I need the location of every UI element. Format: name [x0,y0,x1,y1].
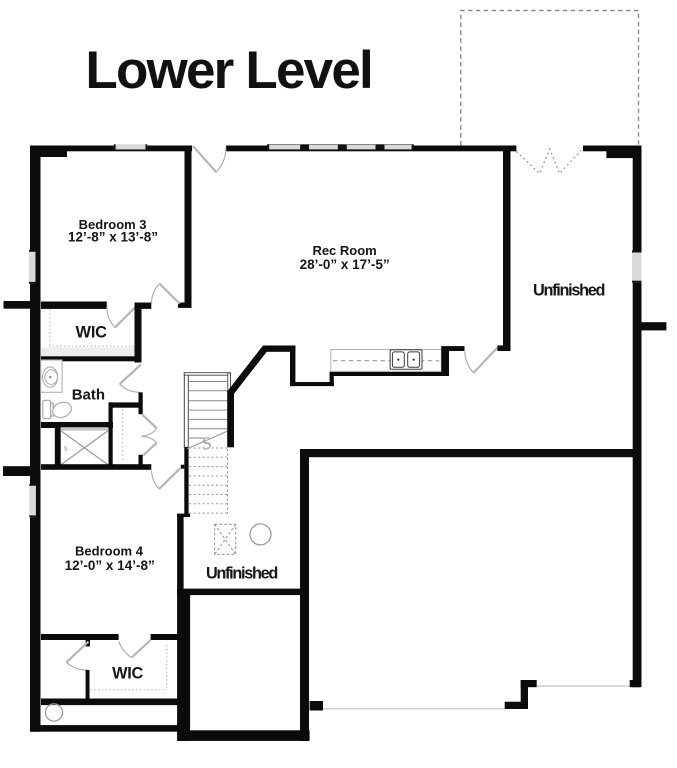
svg-text:28’-0” x 17’-5”: 28’-0” x 17’-5” [300,257,390,272]
svg-text:Unfinished: Unfinished [206,565,277,583]
svg-text:s: s [64,446,68,453]
svg-text:Lower Level: Lower Level [85,41,372,100]
svg-text:12’-8” x 13’-8”: 12’-8” x 13’-8” [68,230,158,245]
svg-text:Unfinished: Unfinished [533,282,604,300]
svg-text:12’-0” x 14’-8”: 12’-0” x 14’-8” [65,558,155,573]
svg-text:Rec Room: Rec Room [312,243,376,258]
svg-text:Bedroom 4: Bedroom 4 [75,544,144,559]
svg-text:WIC: WIC [76,323,107,341]
svg-text:WIC: WIC [112,664,143,682]
svg-text:Bath: Bath [72,387,105,404]
